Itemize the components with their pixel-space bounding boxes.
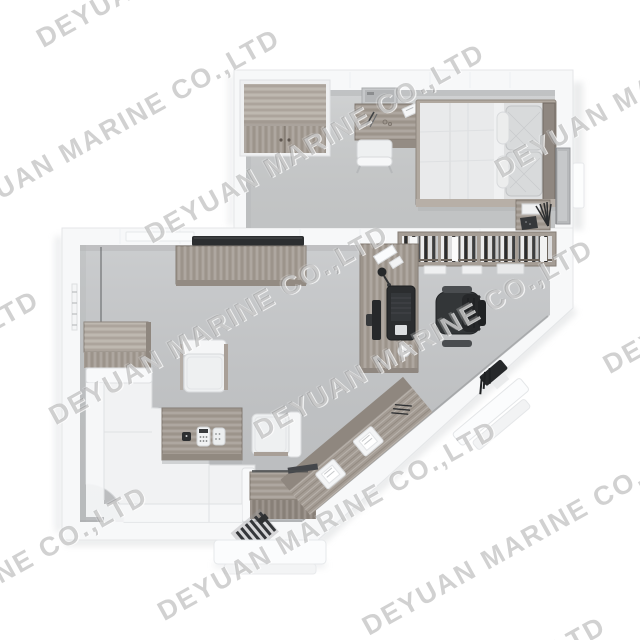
laptop	[387, 286, 415, 340]
chair-back	[462, 294, 480, 332]
sofa-backrest-left	[86, 383, 104, 517]
dark-bag	[520, 216, 538, 230]
armrest	[442, 340, 472, 347]
armchair-right	[252, 412, 301, 457]
desk-knob	[377, 358, 382, 363]
product-image: DEYUAN MARINE CO.,LTDDEYUAN MARINE CO.,L…	[0, 0, 640, 640]
armchair-wood-arm	[224, 344, 228, 390]
double-bed	[416, 100, 556, 211]
wall-panel	[362, 88, 397, 105]
books	[480, 236, 515, 262]
bedroom-wall-tv	[556, 148, 570, 224]
wardrobe-handle	[279, 138, 282, 141]
sofa-armrest-top	[86, 368, 152, 383]
nightstand	[516, 200, 551, 230]
coffee-table	[162, 408, 242, 464]
media-sideboard	[176, 246, 306, 286]
duvet	[420, 103, 504, 199]
bookshelf	[398, 232, 556, 266]
outside-shelf	[573, 163, 584, 208]
armrest	[442, 286, 472, 293]
side-cabinet	[84, 322, 151, 368]
armchair-top	[180, 340, 228, 392]
headrest	[478, 300, 486, 326]
door-hinge	[72, 284, 77, 330]
headboard	[543, 103, 555, 201]
armchair-wood-arm	[254, 452, 288, 456]
entry-step	[214, 540, 326, 574]
books	[441, 236, 477, 262]
wall-shelf	[126, 232, 194, 241]
sofa-backrest-bottom	[104, 504, 242, 522]
wardrobe	[240, 80, 330, 156]
floor-plan	[0, 0, 640, 640]
wardrobe-handle	[287, 138, 290, 141]
document-trays	[424, 264, 524, 274]
touchpad	[395, 325, 407, 335]
